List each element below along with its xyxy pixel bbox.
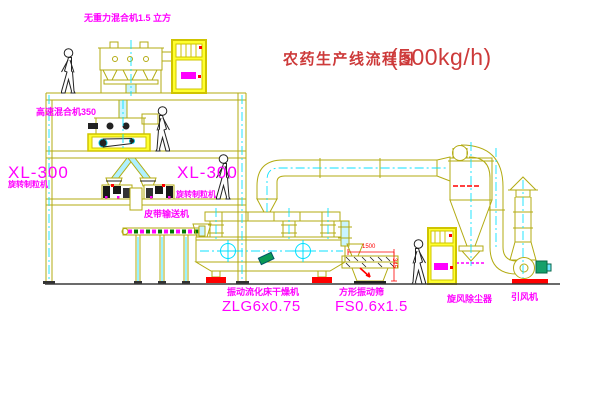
label-dryer-name: 振动流化床干燥机 [227, 288, 299, 297]
belt-conveyor [122, 228, 204, 284]
dimension-screen-height: 345 [391, 258, 397, 268]
label-screen-model: FS0.6x1.5 [335, 299, 408, 314]
label-high-speed-mixer: 高速混合机350 [36, 108, 96, 117]
label-belt-conveyor: 皮带输送机 [144, 210, 189, 219]
label-granulator-left-model: XL-300 [8, 164, 69, 181]
label-granulator-left-name: 旋转制粒机 [8, 181, 48, 189]
dryer-feet [206, 277, 332, 283]
person-ground [412, 240, 426, 284]
dimension-screen-width: 1500 [362, 244, 375, 250]
exhaust-duct [257, 157, 450, 212]
induced-draft-fan [512, 258, 551, 285]
process-flow-drawing-canvas: 无重力混合机1.5 立方 农药生产线流程图 (500kg/h) 高速混合机350… [0, 0, 600, 403]
label-granulator-right-name: 旋转制粒机 [176, 191, 216, 199]
person-top-floor [62, 49, 76, 93]
label-granulator-right-model: XL-300 [177, 164, 238, 181]
label-screen-name: 方形振动筛 [339, 288, 384, 297]
label-fan: 引风机 [511, 293, 538, 302]
gravity-free-mixer [98, 42, 174, 93]
vibrating-screen [342, 244, 398, 284]
control-cabinet-right [428, 228, 456, 284]
label-gravity-free-mixer: 无重力混合机1.5 立方 [84, 14, 171, 23]
drawing-title-capacity: (500kg/h) [390, 46, 492, 69]
granulator-left [102, 184, 132, 199]
y-chute [106, 158, 156, 186]
granulator-right [144, 184, 174, 199]
label-dryer-model: ZLG6x0.75 [222, 299, 301, 314]
label-cyclone: 旋风除尘器 [447, 295, 492, 304]
control-cabinet-top [172, 40, 206, 93]
granulator-discharge-chute [130, 188, 142, 210]
person-second-floor [156, 107, 170, 151]
